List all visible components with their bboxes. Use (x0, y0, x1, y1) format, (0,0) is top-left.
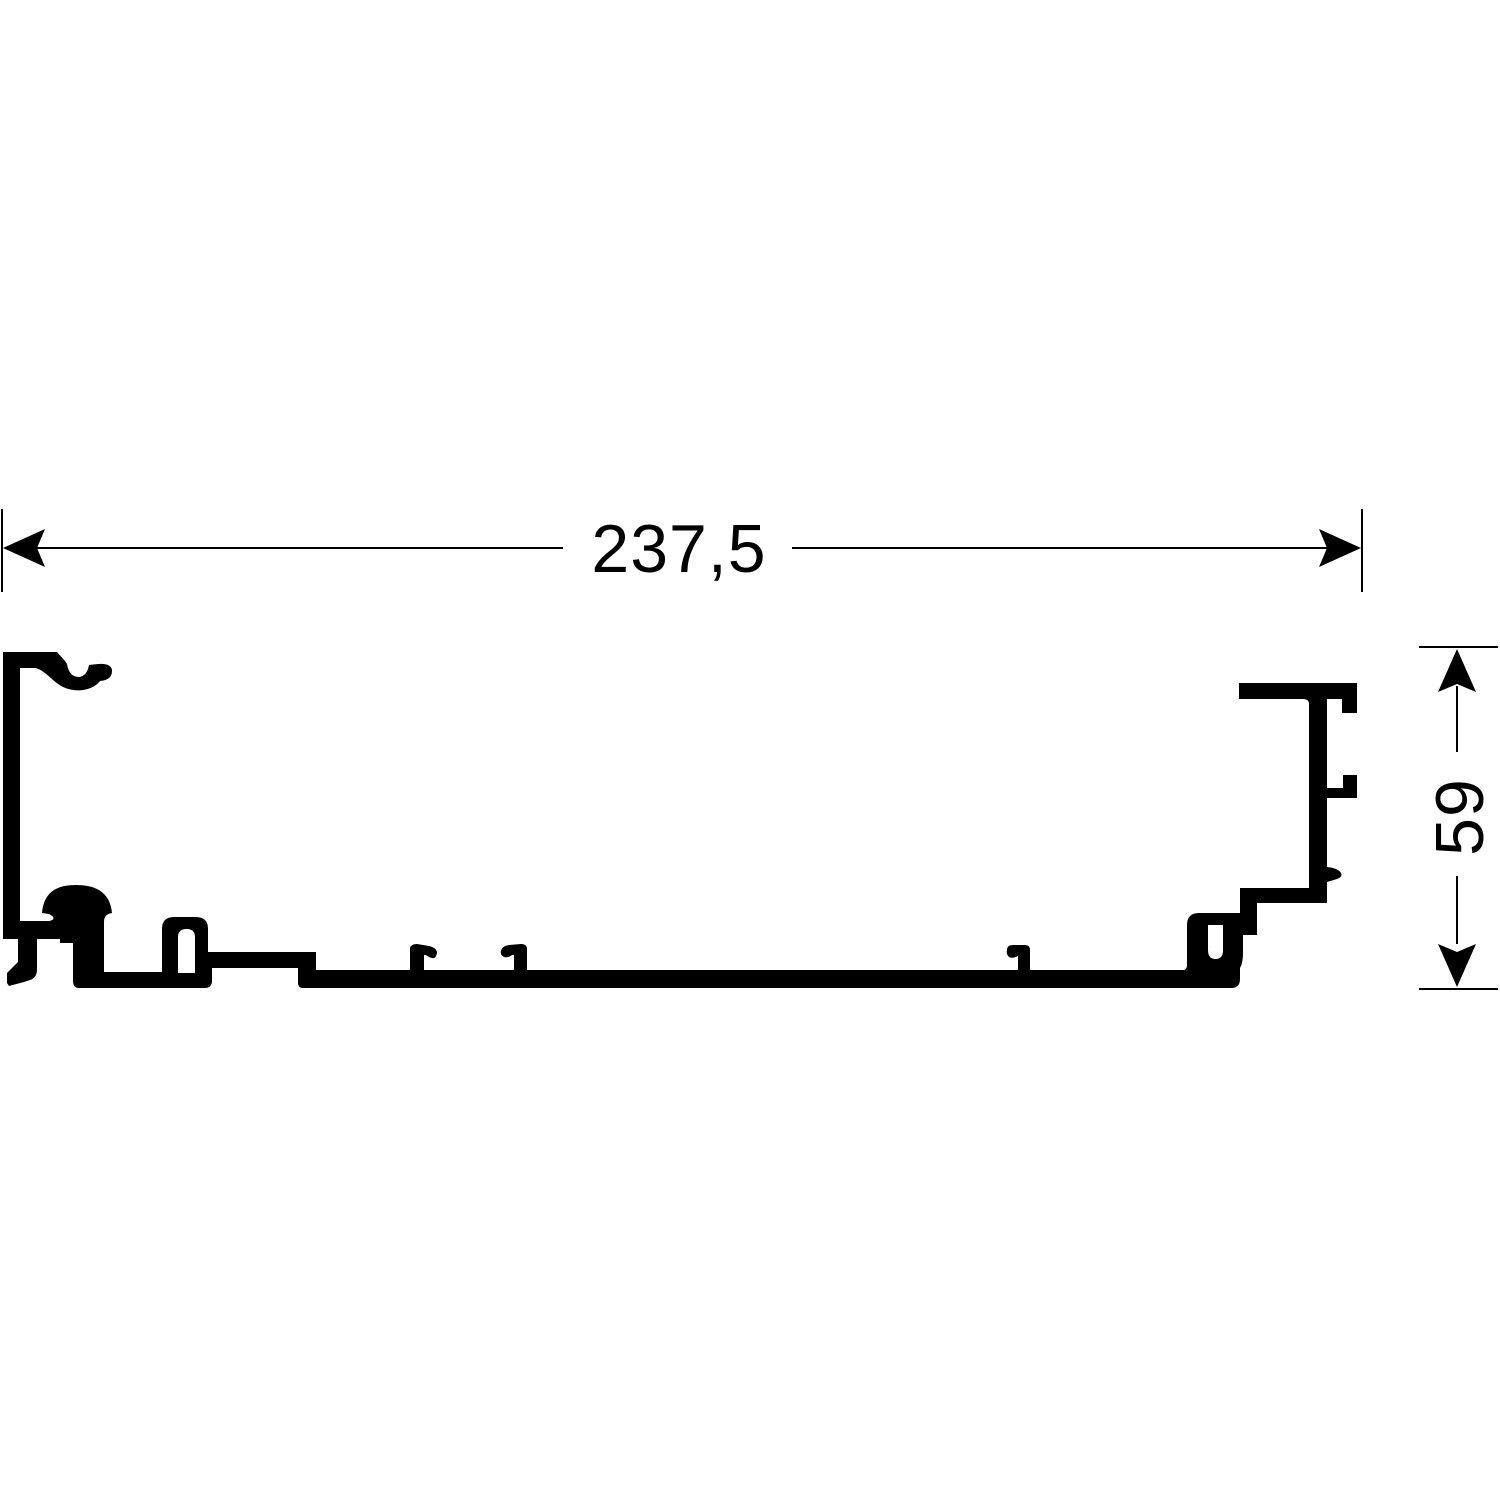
height-dimension: 59 (1419, 647, 1498, 989)
technical-drawing: 237,5 59 (0, 0, 1500, 1500)
profile-outline (3, 652, 1357, 988)
drawing-canvas: 237,5 59 (0, 0, 1500, 1500)
width-dimension: 237,5 (2, 509, 1362, 592)
arrow-down-icon (1438, 944, 1476, 987)
arrow-up-icon (1438, 649, 1476, 692)
width-dimension-label: 237,5 (591, 511, 766, 587)
profile-cross-section (3, 652, 1357, 988)
height-dimension-label: 59 (1422, 778, 1498, 856)
